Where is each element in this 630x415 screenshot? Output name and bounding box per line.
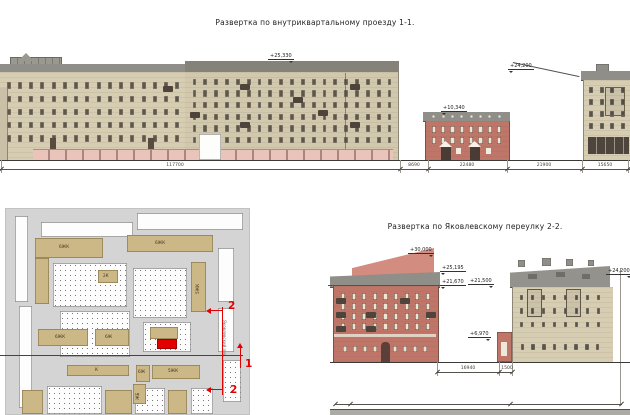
window-cell bbox=[108, 82, 112, 89]
window-cell bbox=[460, 115, 463, 119]
window-cell bbox=[333, 102, 337, 109]
window-cell bbox=[542, 344, 546, 350]
window-cell bbox=[415, 313, 419, 320]
window-cell bbox=[108, 122, 112, 129]
window-cell bbox=[279, 102, 283, 109]
plan-building-tan bbox=[35, 258, 49, 304]
elevation-mark-value: +6,970 bbox=[468, 331, 491, 338]
roof-dormer bbox=[582, 274, 590, 279]
window-cell bbox=[63, 96, 67, 103]
window-cell bbox=[175, 82, 179, 89]
window-cell bbox=[85, 96, 89, 103]
window-cell bbox=[488, 126, 492, 133]
window-cell bbox=[225, 79, 229, 86]
window-cell bbox=[333, 79, 337, 86]
window-cell bbox=[388, 137, 392, 144]
window-cell bbox=[214, 114, 218, 121]
section-line-1 bbox=[0, 355, 243, 356]
window-cell bbox=[40, 135, 44, 142]
window-cell bbox=[333, 125, 337, 132]
window-cell bbox=[470, 115, 473, 119]
balcony bbox=[366, 312, 376, 318]
window-cell bbox=[450, 137, 454, 144]
window-cell bbox=[290, 137, 294, 144]
window-cell bbox=[366, 90, 370, 97]
window-cell bbox=[353, 346, 357, 352]
window-cell bbox=[553, 322, 557, 328]
window-cell bbox=[597, 322, 601, 328]
window-cell bbox=[164, 109, 168, 116]
window-cell bbox=[600, 87, 604, 93]
window-cell bbox=[586, 295, 590, 301]
window-cell bbox=[85, 122, 89, 129]
section-line-1-arrow-shaft bbox=[240, 348, 241, 368]
window-cell bbox=[451, 115, 454, 119]
red-building-attic-windows bbox=[429, 113, 504, 120]
window-cell bbox=[432, 137, 436, 144]
window-cell bbox=[388, 102, 392, 109]
window-cell bbox=[130, 122, 134, 129]
plan-building bbox=[15, 216, 28, 302]
plan-building-tan bbox=[105, 390, 132, 414]
window-cell bbox=[403, 346, 407, 352]
dimension-value: 16940 bbox=[444, 366, 492, 371]
window-cell bbox=[366, 114, 370, 121]
window-cell bbox=[130, 96, 134, 103]
window-cell bbox=[520, 295, 524, 301]
window-cell bbox=[415, 303, 419, 310]
balcony bbox=[163, 86, 173, 92]
balcony bbox=[336, 326, 346, 332]
window-cell bbox=[18, 109, 22, 116]
window-cell bbox=[377, 102, 381, 109]
window-cell bbox=[214, 102, 218, 109]
window-cell bbox=[268, 102, 272, 109]
entrance-door bbox=[148, 138, 154, 149]
window-cell bbox=[142, 135, 146, 142]
window-cell bbox=[589, 87, 593, 93]
elevation-mark-arrow-icon bbox=[429, 255, 433, 259]
window-cell bbox=[388, 79, 392, 86]
window-cell bbox=[333, 137, 337, 144]
window-cell bbox=[268, 79, 272, 86]
window-cell bbox=[426, 303, 430, 310]
entrance-portal bbox=[381, 342, 390, 362]
window-cell bbox=[352, 303, 356, 310]
plan-building-label: 5ЖК bbox=[168, 368, 178, 373]
plan-building-tan bbox=[168, 390, 187, 414]
window-cell bbox=[478, 126, 482, 133]
window-cell bbox=[301, 114, 305, 121]
balcony bbox=[366, 326, 376, 332]
window-cell bbox=[373, 303, 377, 310]
archway-opening bbox=[199, 134, 221, 160]
window-cell bbox=[520, 322, 524, 328]
window-cell bbox=[142, 96, 146, 103]
window-cell bbox=[193, 79, 197, 86]
window-cell bbox=[29, 96, 33, 103]
window-cell bbox=[432, 126, 436, 133]
window-cell bbox=[63, 135, 67, 142]
window-cell bbox=[279, 90, 283, 97]
window-cell bbox=[460, 137, 464, 144]
window-cell bbox=[203, 90, 207, 97]
window-cell bbox=[426, 323, 430, 330]
balcony bbox=[426, 312, 436, 318]
elevation-mark: +10,340 bbox=[441, 94, 467, 113]
window-cell bbox=[7, 96, 11, 103]
window-cell bbox=[225, 114, 229, 121]
window-cell bbox=[29, 135, 33, 142]
window-cell bbox=[130, 135, 134, 142]
basement-window bbox=[486, 148, 491, 154]
window-cell bbox=[394, 303, 398, 310]
window-cell bbox=[247, 90, 251, 97]
window-cell bbox=[366, 79, 370, 86]
plan-building-tan bbox=[22, 390, 43, 414]
window-cell bbox=[355, 102, 359, 109]
window-cell bbox=[542, 295, 546, 301]
window-cell bbox=[164, 135, 168, 142]
section-line-2-arrow-shaft bbox=[211, 310, 223, 311]
window-cell bbox=[323, 137, 327, 144]
window-cell bbox=[40, 82, 44, 89]
elevation-2-title: Развертка по Яковлевскому переулку 2-2. bbox=[335, 222, 615, 231]
extension-line bbox=[620, 268, 621, 405]
window-cell bbox=[7, 109, 11, 116]
chimney bbox=[588, 260, 594, 266]
window-cell bbox=[521, 344, 525, 350]
window-cell bbox=[153, 109, 157, 116]
window-cell bbox=[312, 90, 316, 97]
window-cell bbox=[312, 125, 316, 132]
window-cell bbox=[52, 122, 56, 129]
elevation-mark-arrow-icon bbox=[509, 71, 513, 75]
window-cell bbox=[108, 135, 112, 142]
window-cell bbox=[531, 322, 535, 328]
window-cell bbox=[460, 126, 464, 133]
window-cell bbox=[600, 99, 604, 105]
window-cell bbox=[97, 109, 101, 116]
ground-line bbox=[330, 362, 630, 363]
window-cell bbox=[63, 82, 67, 89]
window-cell bbox=[574, 344, 578, 350]
window-cell bbox=[214, 79, 218, 86]
window-cell bbox=[383, 303, 387, 310]
window-cell bbox=[97, 96, 101, 103]
window-cell bbox=[498, 115, 501, 119]
window-cell bbox=[450, 126, 454, 133]
section-line-2-arrow-shaft bbox=[211, 389, 223, 390]
doorway bbox=[441, 147, 451, 160]
section-arrow-icon bbox=[206, 308, 211, 314]
window-cell bbox=[301, 79, 305, 86]
elevation-mark: +24,200 bbox=[508, 52, 534, 71]
window-cell bbox=[377, 114, 381, 121]
window-cell bbox=[18, 96, 22, 103]
window-cell bbox=[193, 137, 197, 144]
window-cell bbox=[130, 82, 134, 89]
elevation-1-title: Развертка по внутриквартальному проезду … bbox=[150, 18, 480, 27]
window-cell bbox=[236, 102, 240, 109]
window-cell bbox=[352, 293, 356, 300]
window-cell bbox=[575, 322, 579, 328]
window-cell bbox=[600, 111, 604, 117]
window-cell bbox=[355, 114, 359, 121]
elevation-mark-arrow-icon bbox=[442, 113, 446, 117]
window-cell bbox=[585, 344, 589, 350]
window-cell bbox=[108, 96, 112, 103]
window-cell bbox=[377, 90, 381, 97]
elevation-mark: +21,670 bbox=[440, 268, 466, 287]
window-cell bbox=[323, 79, 327, 86]
window-cell bbox=[497, 137, 501, 144]
window-cell bbox=[333, 90, 337, 97]
window-cell bbox=[600, 123, 604, 129]
window-cell bbox=[531, 344, 535, 350]
window-cell bbox=[258, 125, 262, 132]
facade-corner-line bbox=[345, 73, 346, 160]
window-cell bbox=[441, 126, 445, 133]
window-cell bbox=[290, 114, 294, 121]
window-cell bbox=[393, 346, 397, 352]
window-cell bbox=[40, 109, 44, 116]
section-line-2 bbox=[222, 307, 223, 395]
plan-courtyard bbox=[133, 268, 187, 318]
plan-building bbox=[218, 248, 234, 302]
window-cell bbox=[258, 90, 262, 97]
window-cell bbox=[597, 295, 601, 301]
doorway bbox=[470, 147, 480, 160]
window-cell bbox=[214, 125, 218, 132]
window-cell bbox=[97, 82, 101, 89]
dimension-value: 117700 bbox=[150, 163, 200, 168]
window-cell bbox=[203, 114, 207, 121]
window-cell bbox=[279, 137, 283, 144]
window-cell bbox=[175, 122, 179, 129]
window-cell bbox=[153, 122, 157, 129]
window-cell bbox=[203, 125, 207, 132]
window-cell bbox=[597, 308, 601, 314]
window-cell bbox=[236, 114, 240, 121]
window-cell bbox=[74, 122, 78, 129]
balcony bbox=[400, 298, 410, 304]
section-label-2: 2 bbox=[228, 300, 235, 312]
cornice-band bbox=[334, 334, 436, 337]
window-cell bbox=[258, 102, 262, 109]
window-cell bbox=[432, 115, 435, 119]
window-cell bbox=[323, 102, 327, 109]
window-cell bbox=[290, 79, 294, 86]
balcony bbox=[240, 122, 250, 128]
balcony bbox=[318, 110, 328, 116]
plan-building-label: 6ЖК bbox=[155, 240, 165, 245]
window-cell bbox=[377, 79, 381, 86]
window-cell bbox=[268, 137, 272, 144]
window-cell bbox=[564, 322, 568, 328]
balcony bbox=[190, 112, 200, 118]
window-cell bbox=[383, 293, 387, 300]
plan-building-label: 6Ж bbox=[138, 369, 145, 374]
dimension-value: 21900 bbox=[520, 163, 568, 168]
elevation-mark-value: +30,000 bbox=[408, 247, 434, 254]
window-cell bbox=[225, 125, 229, 132]
chimney bbox=[542, 258, 551, 266]
window-cell bbox=[247, 102, 251, 109]
plan-building bbox=[41, 222, 133, 237]
window-cell bbox=[203, 79, 207, 86]
site-plan: 6ЖК 6ЖК 2К 5ЖК 6ЖК 6Ж 6Ж К 5ЖК ЖБ Яковле… bbox=[5, 208, 250, 415]
elevation-mark: +25,330 bbox=[268, 42, 294, 61]
window-cell bbox=[355, 90, 359, 97]
window-cell bbox=[290, 90, 294, 97]
window-cell bbox=[119, 82, 123, 89]
plan-building-tan bbox=[127, 235, 213, 252]
window-cell bbox=[18, 82, 22, 89]
window-cell bbox=[323, 90, 327, 97]
window-cell bbox=[164, 122, 168, 129]
window-cell bbox=[193, 125, 197, 132]
window-cell bbox=[119, 96, 123, 103]
window-cell bbox=[520, 308, 524, 314]
window-cell bbox=[423, 346, 427, 352]
elevation-mark-value: +24,200 bbox=[508, 63, 534, 70]
window-cell bbox=[488, 115, 491, 119]
window-cell bbox=[497, 126, 501, 133]
window-cell bbox=[301, 137, 305, 144]
elevation-mark-value: +10,340 bbox=[441, 105, 467, 112]
window-cell bbox=[85, 82, 89, 89]
window-cell bbox=[366, 125, 370, 132]
plan-building-label: К bbox=[95, 367, 98, 372]
window-cell bbox=[52, 109, 56, 116]
window-cell bbox=[214, 90, 218, 97]
entrance-door bbox=[50, 138, 56, 149]
window-cell bbox=[586, 308, 590, 314]
window-cell bbox=[40, 122, 44, 129]
window-cell bbox=[247, 137, 251, 144]
ground-line bbox=[0, 160, 630, 161]
window-cell bbox=[97, 122, 101, 129]
window-cell bbox=[63, 122, 67, 129]
window-cell bbox=[542, 308, 546, 314]
dimension-line bbox=[437, 372, 512, 373]
plan-building-label: 6Ж bbox=[105, 334, 112, 339]
elevation-mark-arrow-icon bbox=[289, 61, 293, 65]
window-cell bbox=[236, 90, 240, 97]
window-cell bbox=[478, 137, 482, 144]
chimney bbox=[566, 259, 573, 266]
plan-building-label: 2К bbox=[103, 273, 109, 278]
window-cell bbox=[29, 82, 33, 89]
window-cell bbox=[203, 102, 207, 109]
plan-building bbox=[137, 213, 243, 230]
dimension-line bbox=[335, 404, 622, 405]
window-cell bbox=[596, 344, 600, 350]
window-cell bbox=[415, 293, 419, 300]
window-cell bbox=[40, 96, 44, 103]
window-cell bbox=[388, 114, 392, 121]
window-cell bbox=[426, 293, 430, 300]
window-cell bbox=[225, 90, 229, 97]
window-cell bbox=[85, 109, 89, 116]
window-cell bbox=[301, 90, 305, 97]
window-cell bbox=[290, 125, 294, 132]
project-site-marker bbox=[157, 339, 177, 349]
red-building-windows bbox=[429, 124, 504, 146]
window-cell bbox=[366, 137, 370, 144]
window-cell bbox=[225, 102, 229, 109]
window-cell bbox=[18, 122, 22, 129]
window-cell bbox=[74, 82, 78, 89]
window-cell bbox=[377, 137, 381, 144]
dimension-value: 15650 bbox=[581, 163, 629, 168]
window-cell bbox=[373, 346, 377, 352]
window-cell bbox=[589, 111, 593, 117]
window-cell bbox=[343, 346, 347, 352]
window-cell bbox=[388, 90, 392, 97]
window-cell bbox=[193, 102, 197, 109]
ornate-window-frame bbox=[605, 87, 625, 116]
roof-dormer bbox=[556, 272, 565, 277]
window-cell bbox=[405, 323, 409, 330]
window-cell bbox=[18, 135, 22, 142]
balcony bbox=[350, 84, 360, 90]
section-arrow-icon bbox=[237, 343, 243, 348]
window-cell bbox=[74, 135, 78, 142]
ornate-window-frame bbox=[527, 289, 542, 317]
ornate-window-frame bbox=[566, 289, 581, 317]
dimension-value: 1500 bbox=[495, 366, 519, 371]
elevation-mark: +21,500 bbox=[468, 267, 494, 286]
elevation-mark: +24,200 bbox=[606, 257, 630, 276]
window-cell bbox=[394, 323, 398, 330]
window-cell bbox=[355, 137, 359, 144]
window-cell bbox=[153, 96, 157, 103]
balcony bbox=[350, 122, 360, 128]
window-cell bbox=[388, 125, 392, 132]
window-cell bbox=[279, 79, 283, 86]
window-cell bbox=[333, 114, 337, 121]
window-cell bbox=[363, 346, 367, 352]
section-label-2: 2 bbox=[230, 384, 237, 396]
window-cell bbox=[352, 313, 356, 320]
window-cell bbox=[542, 322, 546, 328]
window-cell bbox=[394, 293, 398, 300]
window-cell bbox=[175, 96, 179, 103]
window-cell bbox=[153, 82, 157, 89]
window-cell bbox=[621, 123, 625, 129]
chimney bbox=[518, 260, 525, 267]
window-cell bbox=[323, 125, 327, 132]
window-cell bbox=[175, 135, 179, 142]
window-cell bbox=[119, 135, 123, 142]
window-cell bbox=[29, 122, 33, 129]
window-cell bbox=[589, 99, 593, 105]
window-cell bbox=[279, 114, 283, 121]
plan-building-label: 5ЖК bbox=[195, 284, 200, 294]
window-cell bbox=[74, 109, 78, 116]
plan-building-tan bbox=[150, 327, 178, 339]
annex-door bbox=[501, 342, 507, 356]
window-cell bbox=[352, 323, 356, 330]
window-cell bbox=[236, 137, 240, 144]
window-cell bbox=[413, 346, 417, 352]
window-cell bbox=[383, 323, 387, 330]
elevation-mark: +6,970 bbox=[468, 320, 491, 339]
balcony bbox=[336, 312, 346, 318]
window-cell bbox=[553, 308, 557, 314]
